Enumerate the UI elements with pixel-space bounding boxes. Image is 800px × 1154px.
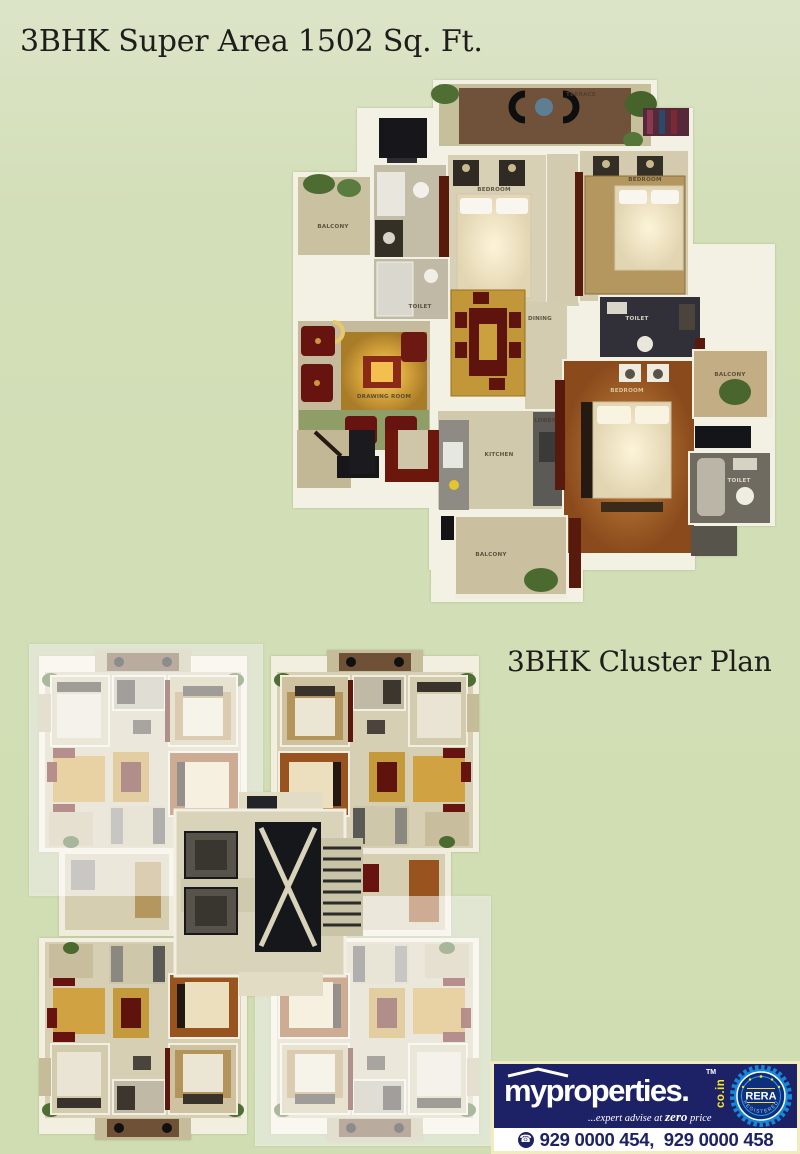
brand-name: myproperties. <box>504 1073 688 1109</box>
cluster-plan-title: 3BHK Cluster Plan <box>507 645 772 678</box>
brand-domain: co.in <box>715 1079 727 1108</box>
svg-text:KITCHEN: KITCHEN <box>485 452 514 458</box>
svg-text:BEDROOM: BEDROOM <box>477 187 511 193</box>
toilet-master <box>599 296 701 358</box>
svg-text:BEDROOM: BEDROOM <box>610 388 644 394</box>
trademark-mark: TM <box>706 1069 716 1076</box>
balcony-right <box>693 350 773 418</box>
rera-badge-icon: RERA REGISTERED <box>730 1065 792 1127</box>
bedroom-2 <box>439 154 547 312</box>
svg-text:BEDROOM: BEDROOM <box>628 177 662 183</box>
central-core <box>175 792 363 996</box>
brand-logo-block: myproperties. TM co.in ...expert advise … <box>494 1064 797 1128</box>
phone-strip: ☎ 929 0000 454, 929 0000 458 <box>494 1128 797 1151</box>
svg-text:TERRACE: TERRACE <box>566 92 596 98</box>
svg-text:TOILET: TOILET <box>408 304 431 310</box>
terrace <box>431 84 689 148</box>
svg-text:DRAWING ROOM: DRAWING ROOM <box>357 394 412 400</box>
rera-badge-label: RERA <box>745 1091 776 1103</box>
svg-text:TOILET: TOILET <box>625 316 648 322</box>
balcony-left <box>297 174 371 256</box>
svg-text:BALCONY: BALCONY <box>317 224 349 230</box>
brochure-page: { "titles": { "main": "3BHK Super Area 1… <box>0 0 800 1154</box>
svg-text:BALCONY: BALCONY <box>475 552 507 558</box>
cluster-floor-plan <box>25 642 493 1148</box>
tagline-zero-word: zero <box>665 1109 687 1124</box>
brand-footer: myproperties. TM co.in ...expert advise … <box>491 1061 800 1154</box>
brand-tagline: ...expert advise at zero price <box>588 1109 712 1125</box>
floor-plan-3bhk-unit: TERRACE BALCONY TOILET BEDROOM BEDROOM D… <box>293 80 775 602</box>
phone-numbers: 929 0000 454, 929 0000 458 <box>540 1129 774 1151</box>
balcony-bottom <box>441 516 581 600</box>
bedroom-3 <box>575 150 689 302</box>
svg-text:LOBBY: LOBBY <box>534 418 556 424</box>
hallway <box>547 154 579 306</box>
phone-icon: ☎ <box>518 1132 534 1148</box>
page-title: 3BHK Super Area 1502 Sq. Ft. <box>20 24 483 59</box>
svg-text:TOILET: TOILET <box>727 478 750 484</box>
dining <box>451 290 525 396</box>
toilet-left <box>373 258 449 320</box>
svg-text:BALCONY: BALCONY <box>714 372 746 378</box>
svg-text:DINING: DINING <box>528 316 552 322</box>
